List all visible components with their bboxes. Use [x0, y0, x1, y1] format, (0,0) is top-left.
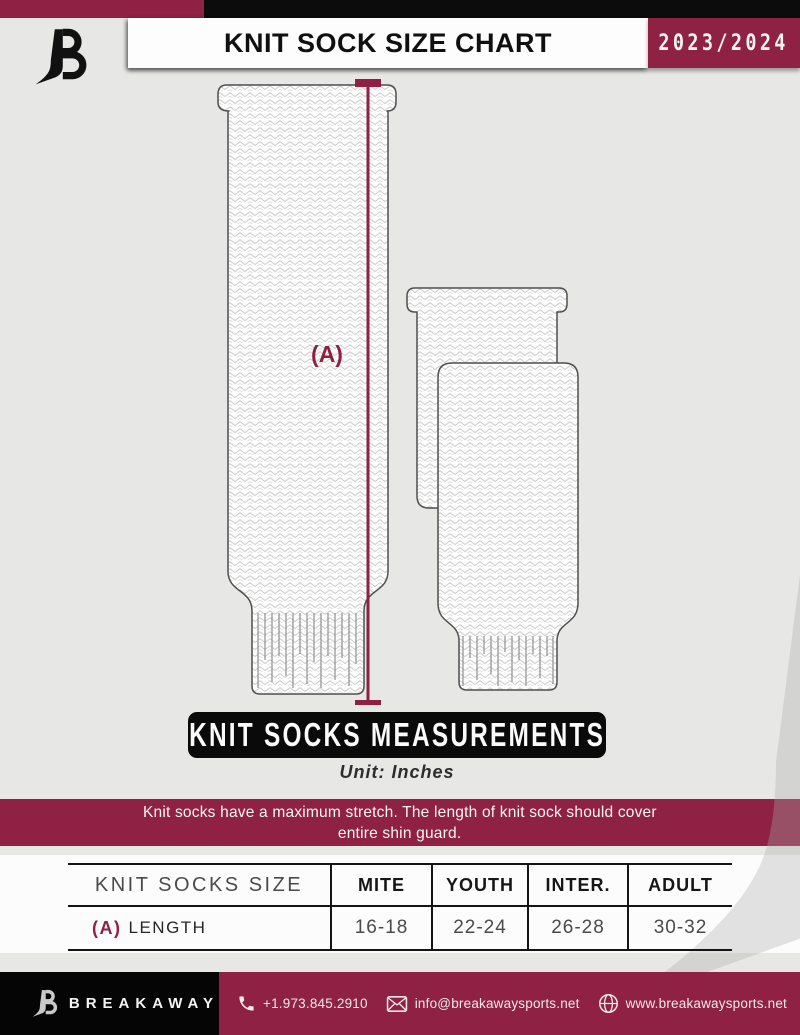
breakaway-b-logo-icon	[26, 26, 90, 90]
footer-brand-block: BREAKAWAY	[0, 972, 219, 1035]
footer-website-text: www.breakawaysports.net	[626, 996, 787, 1011]
footer-phone[interactable]: +1.973.845.2910	[237, 994, 368, 1013]
length-label: LENGTH	[129, 918, 207, 938]
length-adult: 30-32	[627, 907, 732, 949]
measurements-banner: KNIT SOCKS MEASUREMENTS	[188, 712, 606, 758]
email-icon	[386, 995, 408, 1013]
footer-website[interactable]: www.breakawaysports.net	[598, 993, 787, 1014]
table-header-adult: ADULT	[627, 865, 732, 907]
globe-icon	[598, 993, 619, 1014]
footer-email-text: info@breakawaysports.net	[415, 996, 580, 1011]
table-row-length-label: (A) LENGTH	[68, 907, 330, 949]
table-header-size: KNIT SOCKS SIZE	[68, 865, 330, 907]
top-strip-maroon	[0, 0, 204, 18]
measurements-banner-label: KNIT SOCKS MEASUREMENTS	[189, 716, 605, 754]
season-label: 2023/2024	[659, 31, 789, 56]
footer-email[interactable]: info@breakawaysports.net	[386, 995, 580, 1013]
table-header-mite: MITE	[330, 865, 431, 907]
length-key: (A)	[92, 918, 122, 939]
table-header-youth: YOUTH	[431, 865, 527, 907]
top-strip	[0, 0, 800, 18]
header-title-box: KNIT SOCK SIZE CHART	[128, 18, 648, 68]
season-box: 2023/2024	[648, 18, 800, 68]
knit-sock-size-chart-infographic: KNIT SOCK SIZE CHART 2023/2024	[0, 0, 800, 1035]
footer-b-logo-icon	[28, 984, 59, 1024]
footer: BREAKAWAY +1.973.845.2910 info@breakaway…	[0, 972, 800, 1035]
length-youth: 22-24	[431, 907, 527, 949]
footer-contact-block: +1.973.845.2910 info@breakawaysports.net…	[219, 972, 800, 1035]
page-title: KNIT SOCK SIZE CHART	[224, 28, 552, 59]
size-table: KNIT SOCKS SIZE MITE YOUTH INTER. ADULT …	[68, 863, 732, 951]
length-mite: 16-18	[330, 907, 431, 949]
footer-phone-text: +1.973.845.2910	[263, 996, 368, 1011]
footer-brand-name: BREAKAWAY	[69, 995, 219, 1012]
length-inter: 26-28	[527, 907, 627, 949]
notice-line-2: entire shin guard.	[338, 823, 461, 844]
unit-label: Unit: Inches	[188, 762, 606, 783]
phone-icon	[237, 994, 256, 1013]
table-header-inter: INTER.	[527, 865, 627, 907]
